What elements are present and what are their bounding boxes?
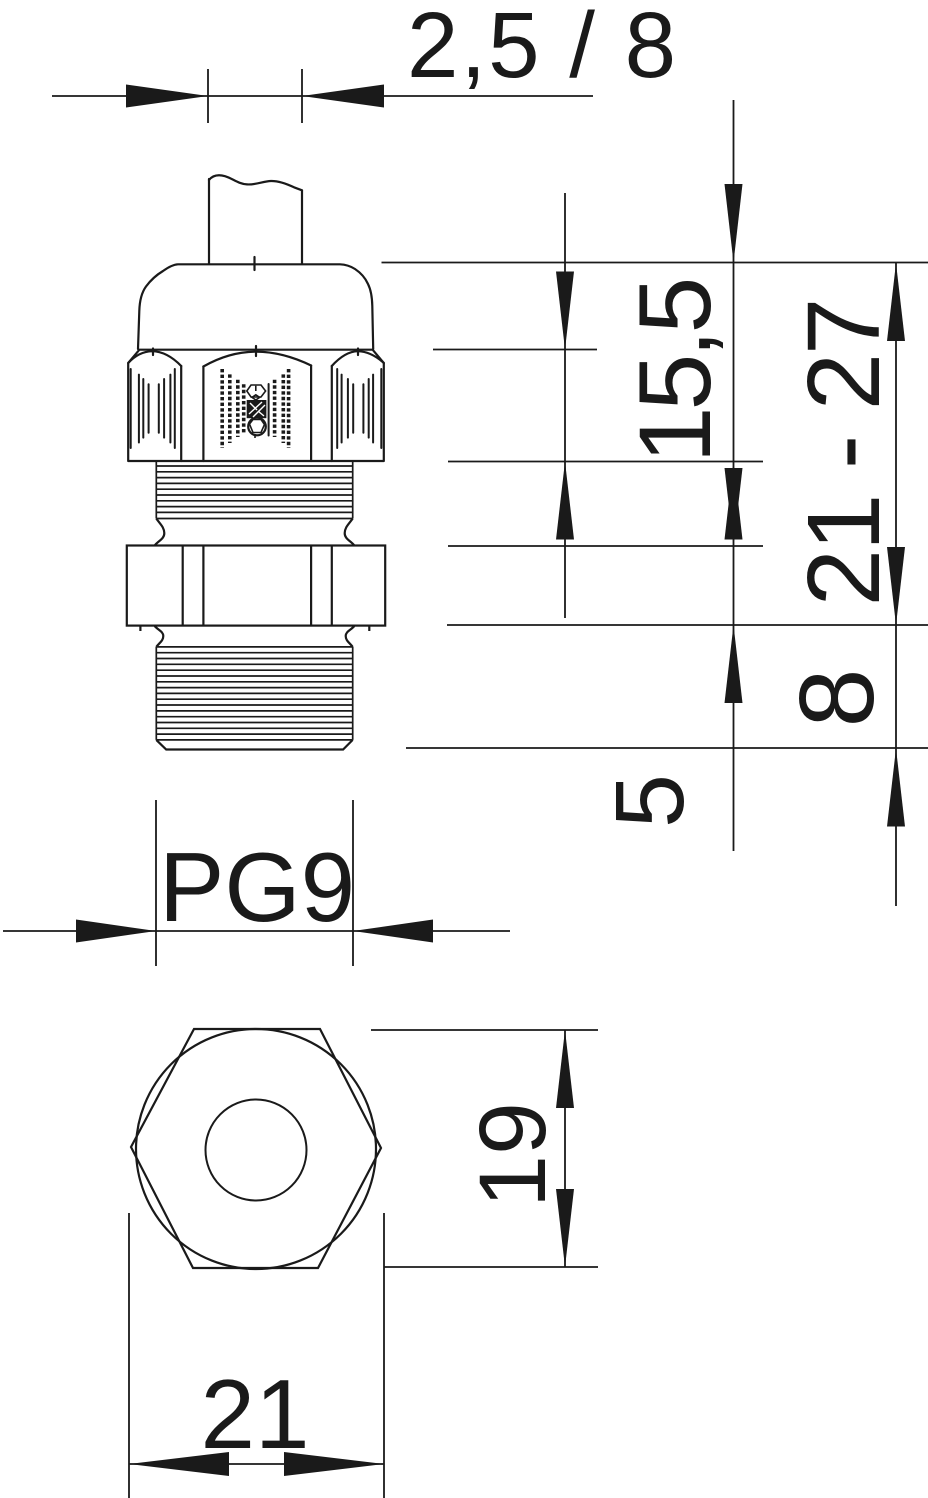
svg-text:8: 8: [778, 669, 896, 728]
svg-text:2,5 / 8: 2,5 / 8: [407, 0, 678, 97]
svg-text:5: 5: [595, 774, 704, 828]
svg-text:PG9: PG9: [159, 832, 355, 942]
svg-text:15,5: 15,5: [618, 280, 732, 463]
svg-text:19: 19: [460, 1102, 566, 1208]
svg-text:21: 21: [200, 1359, 309, 1469]
svg-text:21 - 27: 21 - 27: [786, 300, 901, 607]
